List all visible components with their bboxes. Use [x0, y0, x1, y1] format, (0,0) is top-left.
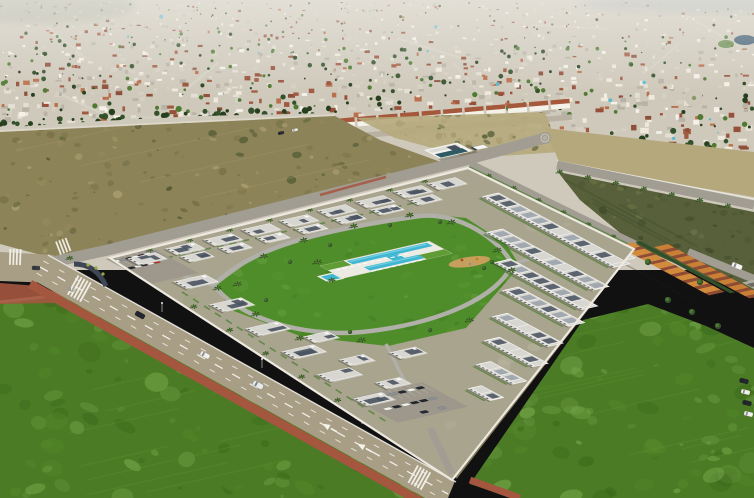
junction-roundabout [539, 132, 551, 144]
utility-box [68, 287, 71, 291]
aerial-photo: Oblique aerial view of a new white resid… [0, 0, 754, 498]
aerial-photo-svg: Oblique aerial view of a new white resid… [0, 0, 754, 498]
utility-box [73, 289, 76, 292]
atmospheric-haze [0, 0, 754, 95]
